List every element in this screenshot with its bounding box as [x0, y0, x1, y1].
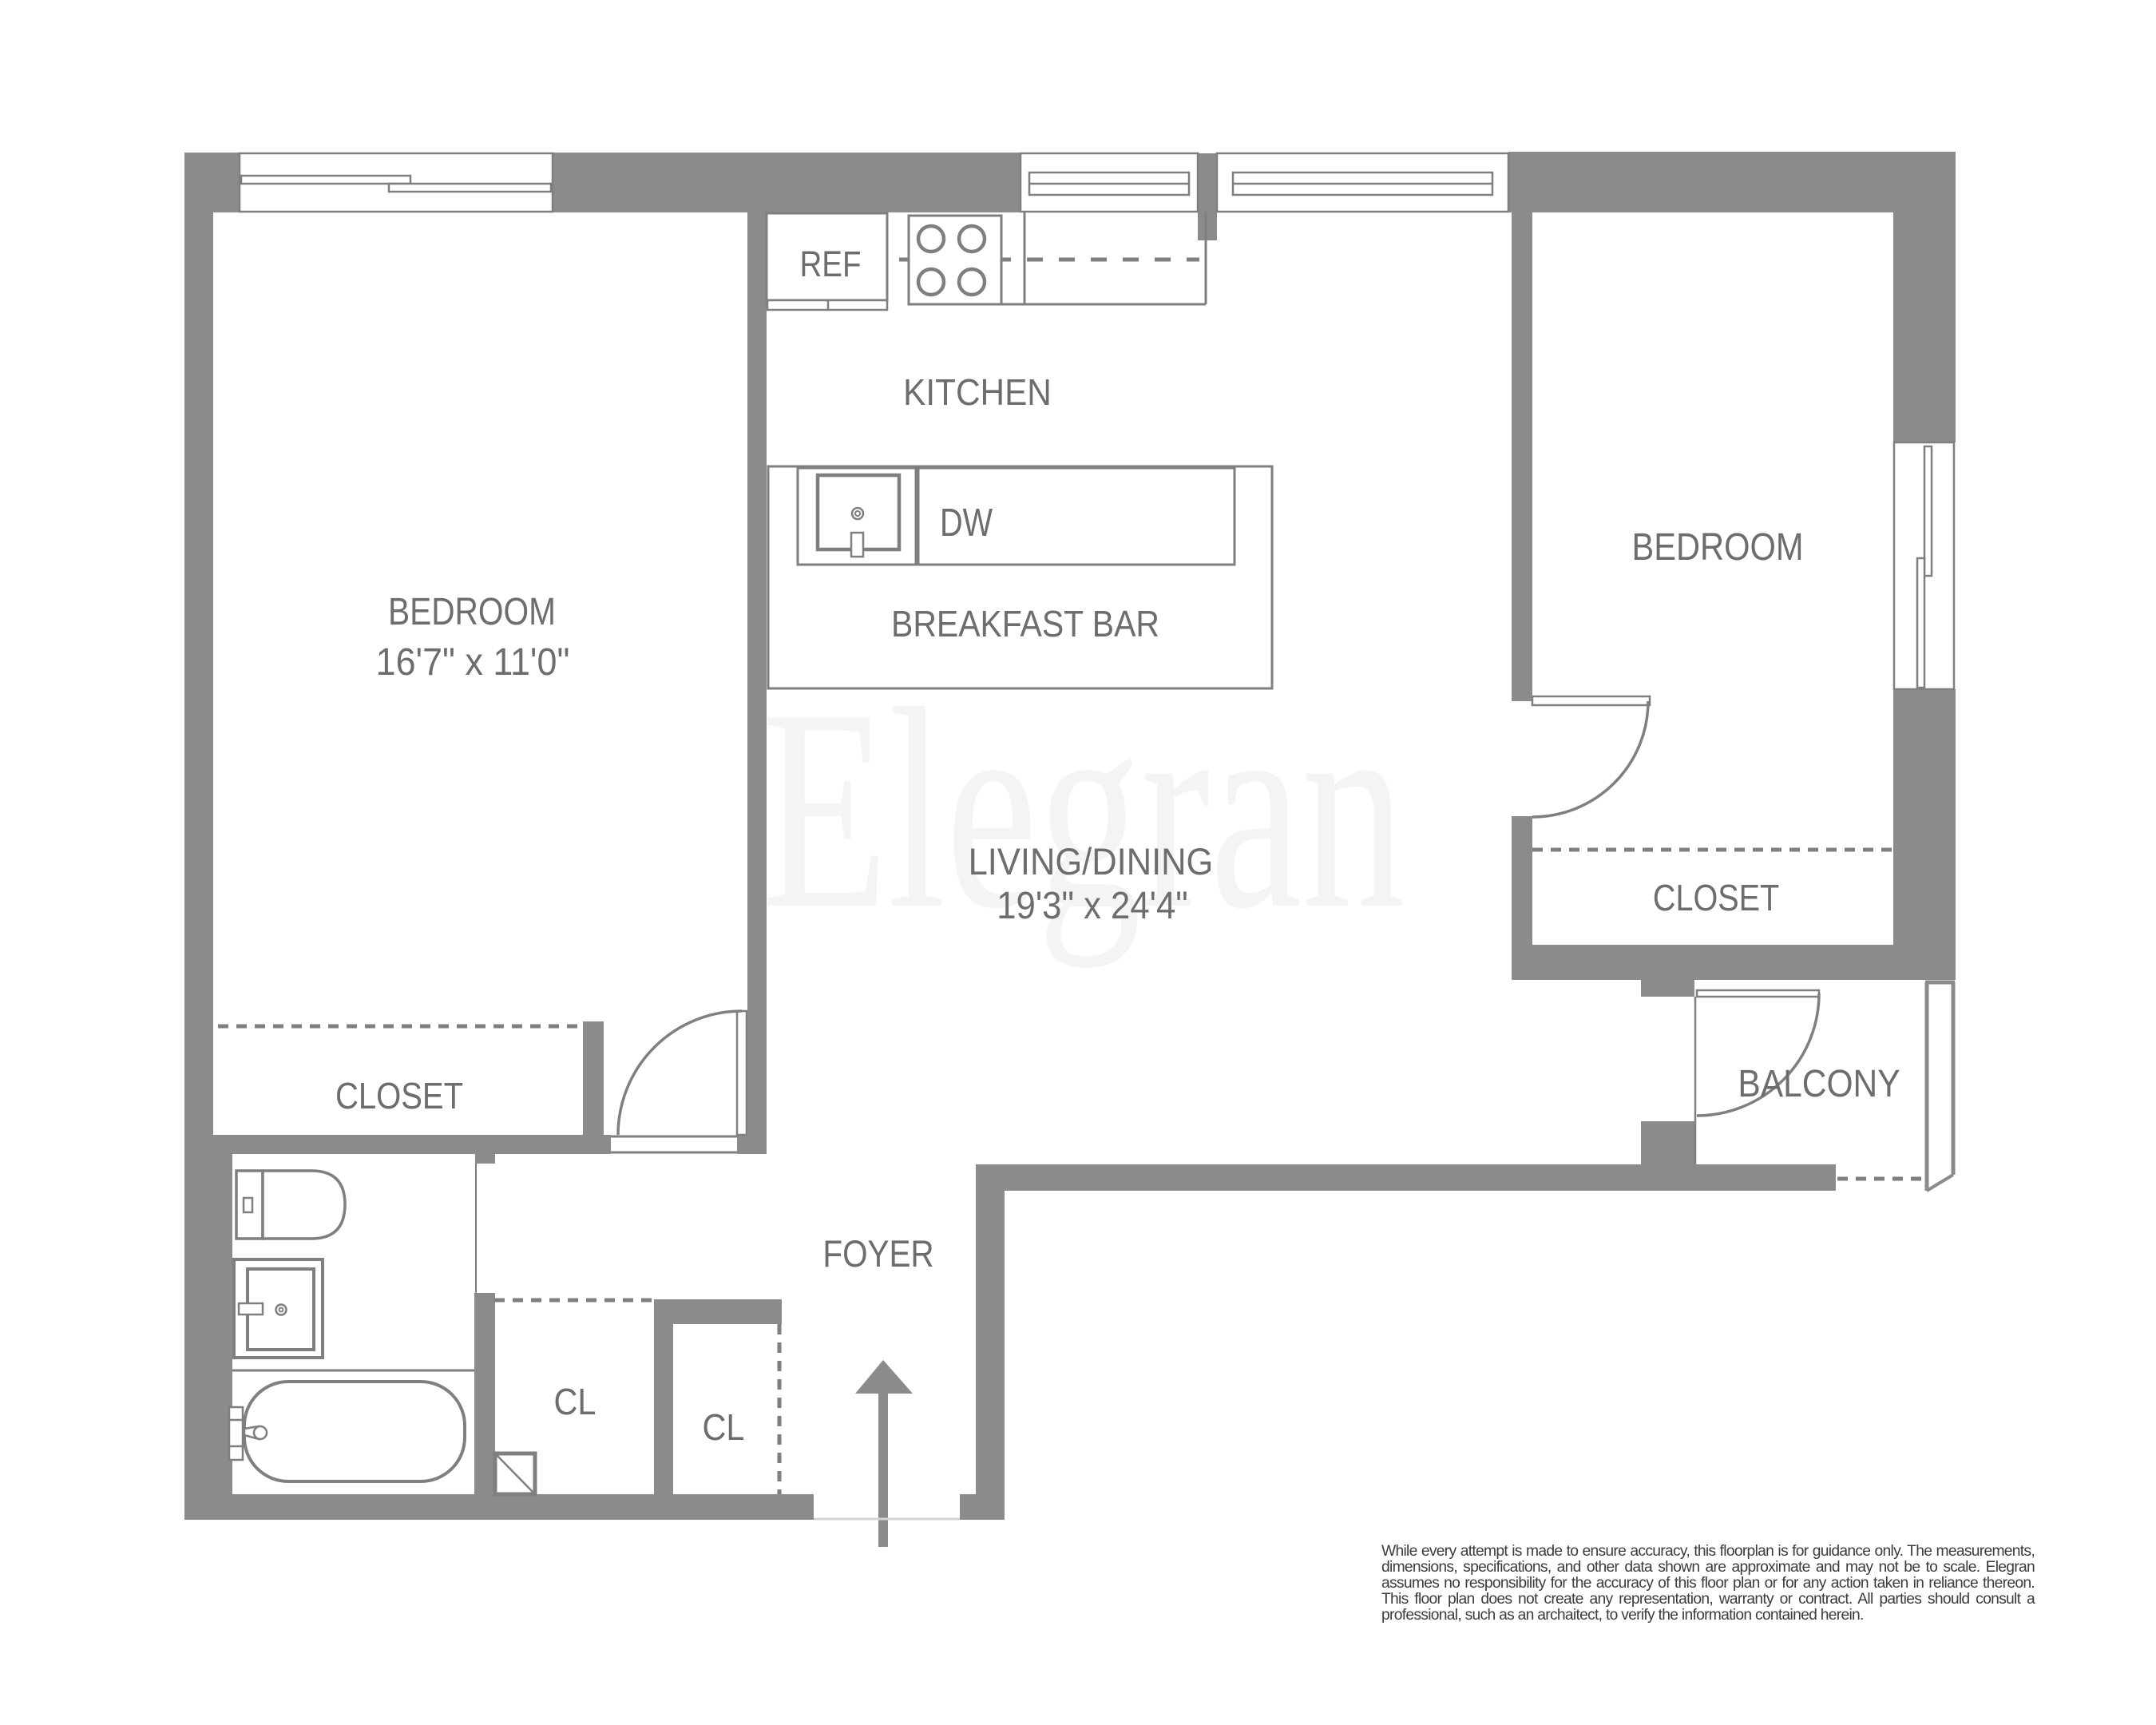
- svg-text:BALCONY: BALCONY: [1738, 1062, 1900, 1105]
- svg-text:CLOSET: CLOSET: [1653, 878, 1779, 918]
- svg-text:LIVING/DINING: LIVING/DINING: [969, 840, 1214, 882]
- svg-text:CLOSET: CLOSET: [335, 1076, 463, 1116]
- svg-text:BREAKFAST BAR: BREAKFAST BAR: [891, 605, 1159, 645]
- svg-text:19'3" x 24'4": 19'3" x 24'4": [997, 883, 1187, 926]
- svg-text:16'7" x 11'0": 16'7" x 11'0": [376, 640, 570, 684]
- svg-text:BEDROOM: BEDROOM: [388, 591, 556, 633]
- svg-text:KITCHEN: KITCHEN: [903, 372, 1052, 413]
- svg-text:CL: CL: [703, 1407, 745, 1449]
- svg-text:FOYER: FOYER: [822, 1233, 933, 1275]
- svg-text:REF: REF: [799, 244, 861, 284]
- svg-text:DW: DW: [940, 502, 993, 545]
- svg-text:BEDROOM: BEDROOM: [1632, 525, 1804, 568]
- svg-text:CL: CL: [554, 1382, 596, 1423]
